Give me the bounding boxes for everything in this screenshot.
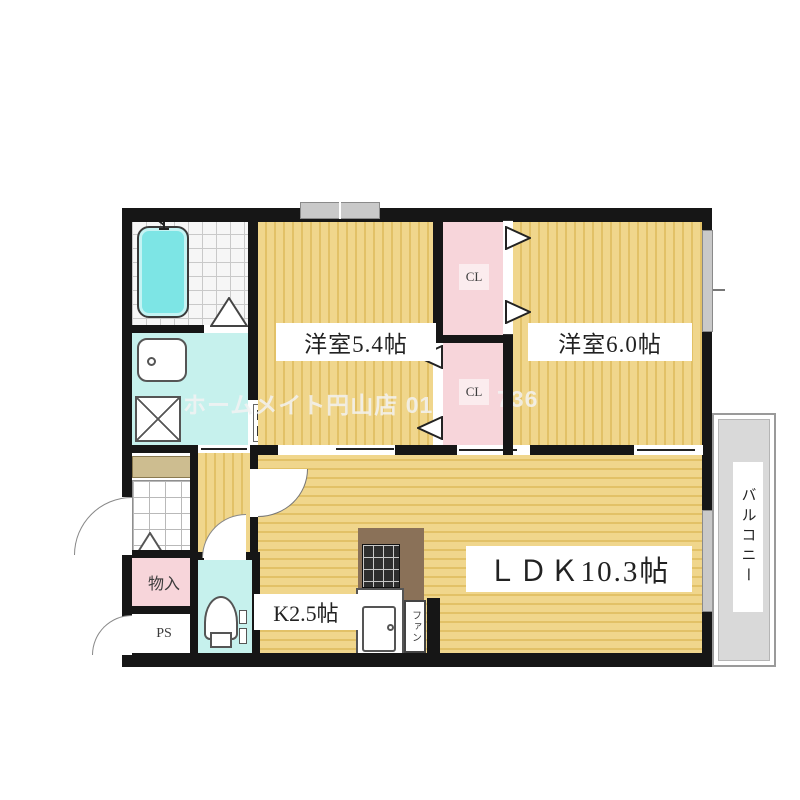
ldk-label-text: ＬＤＫ10.3帖	[488, 548, 671, 590]
entrance-door-arc	[74, 497, 132, 555]
wall-storage-ps	[122, 606, 198, 614]
wall-bottom	[122, 653, 712, 667]
toilet-seat	[210, 632, 232, 648]
bedroom1-label-text: 洋室5.4帖	[304, 325, 408, 359]
ldk-label: ＬＤＫ10.3帖	[466, 546, 692, 592]
bedroom2-label: 洋室6.0帖	[528, 323, 692, 361]
bathtub	[137, 226, 189, 318]
ps-door-arc	[92, 615, 132, 655]
storage-label-text: 物入	[148, 570, 180, 594]
closet-upper-door-mark-2	[505, 300, 531, 324]
kitchen-label: K2.5帖	[254, 594, 358, 630]
balcony-label-text: バルコニー	[738, 487, 759, 587]
washer-pan	[135, 396, 181, 442]
pipe-space-label-text: PS	[156, 626, 172, 642]
window-top-tick	[339, 202, 341, 219]
wall-hall-k-lower	[250, 517, 258, 560]
closet-upper-label-text: CL	[466, 269, 483, 285]
closet-lower-label-text: CL	[466, 384, 483, 400]
stove	[362, 544, 400, 588]
washbasin-drain	[147, 357, 156, 366]
closet-upper-label: CL	[459, 264, 489, 290]
wall-closet-east	[503, 343, 513, 455]
bedroom1-slide-gap	[278, 445, 395, 455]
range-fan-label: ファン	[408, 610, 423, 643]
bedroom2-label-text: 洋室6.0帖	[558, 325, 662, 359]
wall-top	[122, 208, 712, 222]
wall-washroom-east	[248, 208, 258, 400]
wall-closet-mid	[433, 335, 513, 343]
bedroom1-slide-door	[336, 448, 394, 450]
toilet-tank-control-2	[239, 628, 247, 644]
closet-upper-door-mark-1	[505, 226, 531, 250]
closet-lower-label: CL	[459, 379, 489, 405]
range-fan-box: ファン	[404, 600, 426, 653]
wall-washroom-south	[122, 445, 198, 453]
balcony-label: バルコニー	[733, 462, 763, 612]
wall-entrance-storage	[122, 550, 198, 558]
toilet-tank-control-1	[239, 610, 247, 624]
floor-plan: ファン ホームメイト円山店 01 736 バルコニー	[0, 0, 800, 800]
watermark-left: ホームメイト円山店 01	[183, 386, 433, 420]
kitchen-label-text: K2.5帖	[273, 596, 338, 628]
wall-k-ldk-stub	[427, 598, 440, 657]
shoe-cabinet	[132, 456, 196, 478]
wall-left	[122, 208, 132, 667]
sink-handle	[387, 624, 394, 631]
bedroom1-label: 洋室5.4帖	[276, 323, 436, 361]
bathroom-fold-door-mark	[210, 297, 248, 327]
window-bedroom2	[702, 230, 713, 332]
closet-lower-door-mark-2	[417, 416, 443, 440]
window-bedroom2-tick	[713, 289, 725, 291]
storage-label: 物入	[132, 558, 196, 606]
pipe-space-label: PS	[132, 614, 196, 653]
washbasin	[137, 338, 187, 382]
washroom-slide-door	[201, 448, 247, 450]
ldk-slide-door-2	[637, 449, 695, 451]
